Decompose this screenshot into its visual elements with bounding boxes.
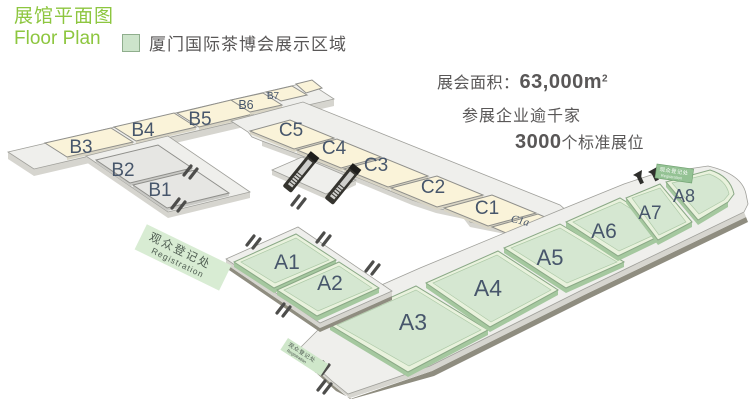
hall-label-c1: C1 (475, 198, 499, 219)
hall-label-b1: B1 (148, 180, 171, 201)
hall-label-b3: B3 (69, 137, 92, 158)
hall-label-b4: B4 (131, 120, 155, 141)
hall-label-a6: A6 (591, 220, 617, 243)
floorplan-canvas: 观众登记处 Registration 观众登记处 Registration 观众… (0, 0, 751, 400)
entrance-arrow-icon (292, 196, 305, 208)
hall-label-a4: A4 (474, 275, 502, 301)
hall-label-a8: A8 (673, 186, 695, 206)
hall-label-c3: C3 (364, 155, 388, 176)
hall-label-b5: B5 (188, 109, 211, 130)
hall-label-a3: A3 (399, 309, 427, 335)
hall-label-c2: C2 (421, 177, 445, 198)
hall-label-c4: C4 (322, 138, 347, 159)
registration-area-left: 观众登记处 Registration (135, 224, 232, 290)
hall-label-a5: A5 (537, 245, 564, 270)
hall-label-b6: B6 (238, 98, 253, 112)
hall-label-a7: A7 (638, 203, 661, 224)
hall-label-b7: B7 (267, 91, 280, 102)
entrance-arrow-icon (366, 262, 379, 274)
hall-label-c5: C5 (279, 120, 303, 141)
hall-label-a2: A2 (317, 272, 343, 295)
floorplan-page: 展馆平面图 Floor Plan 厦门国际茶博会展示区域 展会面积：63,000… (0, 0, 751, 400)
hall-label-b2: B2 (111, 160, 134, 181)
hall-label-a1: A1 (274, 251, 300, 274)
